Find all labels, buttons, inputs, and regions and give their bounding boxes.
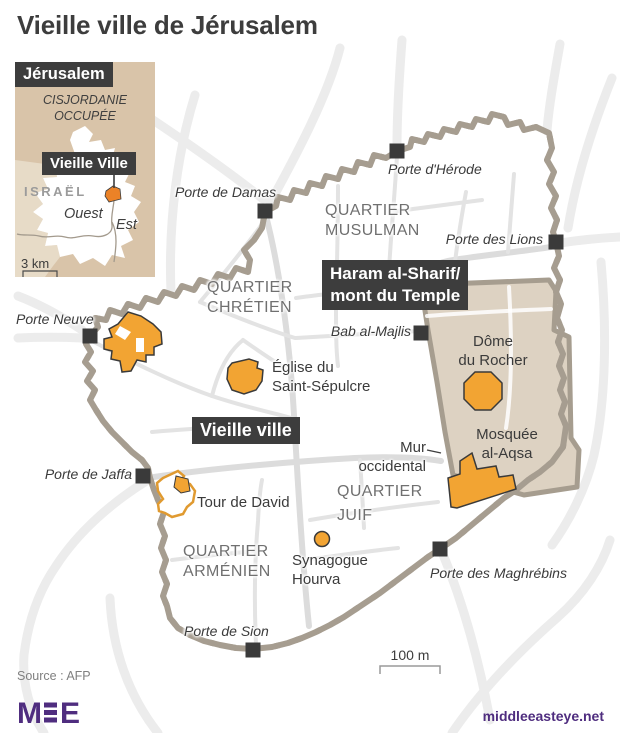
- quarter-label-armenien: QUARTIER ARMÉNIEN: [183, 542, 271, 582]
- new-gate-complex-shape: [104, 312, 162, 372]
- gate-label-herode: Porte d'Hérode: [388, 161, 482, 177]
- inset-title: Jérusalem: [15, 62, 113, 87]
- scale-bar: [380, 666, 440, 674]
- landmark-label-dome: Dôme du Rocher: [450, 332, 536, 370]
- inset-old-city-label: Vieille Ville: [42, 152, 136, 175]
- quarter-label-musulman: QUARTIER MUSULMAN: [325, 201, 420, 241]
- quarter-label-juif: QUARTIER JUIF: [337, 480, 423, 528]
- gate-label-majlis: Bab al-Majlis: [323, 323, 411, 339]
- gate-marker-majlis: [414, 326, 429, 341]
- old-city-highlight-label: Vieille ville: [192, 417, 300, 444]
- holy-sepulchre-shape: [227, 359, 263, 394]
- gate-label-jaffa: Porte de Jaffa: [44, 466, 132, 482]
- quarter-label-chretien: QUARTIER CHRÉTIEN: [207, 278, 293, 318]
- western-wall-pointer: [427, 450, 441, 453]
- west-jerusalem-label: Ouest: [64, 206, 103, 222]
- gate-label-lions: Porte des Lions: [443, 231, 543, 247]
- gate-label-damas: Porte de Damas: [175, 184, 276, 200]
- west-bank-label: CISJORDANIE OCCUPÉE: [30, 92, 140, 124]
- svg-text:M: M: [17, 699, 42, 729]
- inset-scale-label: 3 km: [21, 256, 49, 271]
- gate-marker-sion: [246, 643, 261, 658]
- gate-label-neuve: Porte Neuve: [16, 311, 94, 327]
- inset-map: Jérusalem CISJORDANIE OCCUPÉE Vieille Vi…: [15, 62, 155, 277]
- hourva-synagogue-marker: [315, 532, 330, 547]
- gate-marker-lions: [549, 235, 564, 250]
- gate-label-sion: Porte de Sion: [184, 623, 269, 639]
- gate-marker-herode: [390, 144, 405, 159]
- landmark-label-aqsa: Mosquée al-Aqsa: [464, 425, 550, 463]
- israel-label: ISRAËL: [24, 184, 87, 199]
- mee-logo: M E: [17, 699, 87, 729]
- haram-highlight-label: Haram al-Sharif/ mont du Temple: [322, 260, 468, 310]
- landmark-label-hourva: Synagogue Hourva: [292, 551, 368, 589]
- east-jerusalem-label: Est: [116, 217, 137, 233]
- landmark-label-mur: Mur occidental: [350, 438, 426, 476]
- infographic-old-city-jerusalem: Vieille ville de Jérusalem Jérusalem CIS…: [0, 0, 620, 733]
- gate-label-maghrebins: Porte des Maghrébins: [430, 565, 567, 581]
- landmark-label-david: Tour de David: [197, 493, 290, 512]
- gate-marker-maghrebins: [433, 542, 448, 557]
- gate-marker-damas: [258, 204, 273, 219]
- svg-text:E: E: [60, 699, 80, 729]
- website-link[interactable]: middleeasteye.net: [483, 708, 604, 724]
- landmark-label-sepulcre: Église du Saint-Sépulcre: [272, 358, 370, 396]
- source-credit: Source : AFP: [17, 669, 91, 683]
- mee-logo-bars: [44, 703, 57, 723]
- dome-of-the-rock-shape: [464, 372, 502, 410]
- gate-marker-neuve: [83, 329, 98, 344]
- gate-marker-jaffa: [136, 469, 151, 484]
- map-scale-label: 100 m: [378, 647, 442, 663]
- page-title: Vieille ville de Jérusalem: [17, 10, 318, 41]
